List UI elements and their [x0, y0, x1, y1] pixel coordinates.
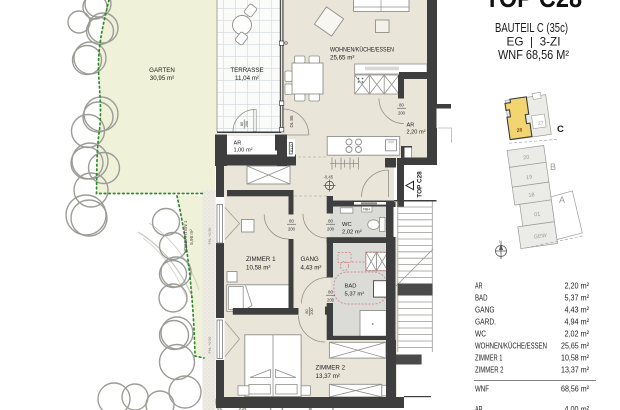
svg-text:TOP C28: TOP C28: [417, 171, 424, 198]
svg-text:AR: AR: [475, 281, 483, 291]
svg-text:ZIMMER 2: ZIMMER 2: [475, 365, 504, 375]
svg-text:ZIMMER 2: ZIMMER 2: [316, 365, 346, 372]
svg-text:200: 200: [398, 111, 406, 116]
svg-text:10,58 m²: 10,58 m²: [246, 265, 270, 272]
svg-text:25,65 m²: 25,65 m²: [330, 55, 354, 62]
svg-text:80: 80: [305, 309, 309, 313]
svg-text:13,37 m²: 13,37 m²: [561, 365, 589, 375]
svg-text:TERRASSE: TERRASSE: [230, 67, 263, 74]
svg-text:B: B: [550, 162, 556, 172]
svg-text:-0,45: -0,45: [324, 175, 334, 180]
svg-text:FHL +0,90: FHL +0,90: [208, 337, 212, 354]
svg-text:2,20 m²: 2,20 m²: [565, 281, 590, 291]
svg-text:80: 80: [240, 122, 244, 126]
svg-text:30,95 m²: 30,95 m²: [150, 75, 174, 82]
svg-text:2,02 m²: 2,02 m²: [565, 329, 590, 339]
svg-text:20: 20: [523, 155, 530, 162]
svg-text:68,56 m²: 68,56 m²: [561, 384, 589, 394]
svg-text:19: 19: [526, 174, 533, 181]
svg-text:80: 80: [289, 219, 294, 224]
svg-text:2,20 m²: 2,20 m²: [407, 130, 426, 136]
svg-text:80: 80: [328, 219, 333, 224]
svg-text:WC: WC: [475, 329, 486, 339]
svg-text:FHL +0,90: FHL +0,90: [208, 228, 212, 245]
svg-text:C: C: [557, 124, 564, 135]
svg-text:TOP C28: TOP C28: [485, 0, 582, 13]
svg-text:4,00 m²: 4,00 m²: [565, 404, 590, 410]
svg-text:4,94 m²: 4,94 m²: [565, 317, 590, 327]
svg-text:WNF 68,56 M²: WNF 68,56 M²: [498, 48, 569, 62]
svg-text:13,37 m²: 13,37 m²: [316, 373, 340, 380]
svg-text:GANG: GANG: [475, 305, 495, 315]
svg-text:2,02 m²: 2,02 m²: [342, 230, 362, 236]
svg-text:FBH: FBH: [363, 208, 370, 212]
svg-text:AR: AR: [475, 404, 483, 410]
svg-text:5,37 m²: 5,37 m²: [565, 293, 590, 303]
svg-text:GARD.: GARD.: [475, 317, 496, 327]
svg-text:AR: AR: [407, 123, 415, 129]
svg-text:27: 27: [538, 120, 545, 127]
svg-text:25,65 m²: 25,65 m²: [561, 341, 589, 351]
svg-text:GANG: GANG: [301, 256, 319, 263]
svg-text:BAD: BAD: [345, 284, 357, 290]
svg-text:BAD: BAD: [475, 293, 488, 303]
svg-text:1,00 m²: 1,00 m²: [234, 148, 253, 154]
svg-text:WC: WC: [342, 222, 352, 228]
svg-text:EG | 3-ZI: EG | 3-ZI: [507, 35, 561, 49]
svg-text:VORGARTEN 1: VORGARTEN 1: [183, 220, 188, 253]
svg-text:A: A: [559, 195, 565, 205]
svg-text:18: 18: [528, 192, 535, 199]
svg-text:AR: AR: [234, 141, 242, 147]
svg-text:WOHNEN/KÜCHE/ESSEN: WOHNEN/KÜCHE/ESSEN: [475, 341, 547, 351]
svg-text:200: 200: [327, 227, 335, 232]
svg-text:5,37 m²: 5,37 m²: [345, 292, 365, 298]
svg-text:WOHNEN/KÜCHE/ESSEN: WOHNEN/KÜCHE/ESSEN: [330, 47, 394, 54]
svg-text:GARTEN: GARTEN: [149, 67, 175, 74]
svg-text:N: N: [499, 239, 502, 244]
svg-text:DL 85: DL 85: [289, 115, 294, 128]
svg-text:10,58 m²: 10,58 m²: [561, 353, 589, 363]
svg-text:ZIMMER 1: ZIMMER 1: [475, 353, 503, 363]
svg-text:11,04 m²: 11,04 m²: [235, 75, 259, 82]
svg-text:ELO: ELO: [290, 144, 294, 152]
svg-text:80: 80: [328, 290, 333, 295]
svg-text:200: 200: [327, 298, 335, 303]
svg-text:01: 01: [534, 212, 541, 219]
svg-text:28: 28: [516, 127, 523, 134]
svg-text:4,43 m²: 4,43 m²: [301, 265, 322, 272]
svg-text:WNF: WNF: [475, 384, 489, 394]
svg-text:200: 200: [288, 227, 296, 232]
svg-text:200: 200: [310, 308, 314, 314]
svg-text:200: 200: [245, 121, 249, 127]
svg-text:BAUTEIL C (35c): BAUTEIL C (35c): [495, 21, 568, 35]
svg-text:5,98 m²: 5,98 m²: [189, 229, 194, 245]
svg-text:ZIMMER 1: ZIMMER 1: [246, 256, 276, 263]
svg-text:4,43 m²: 4,43 m²: [565, 305, 590, 315]
svg-text:80: 80: [399, 103, 404, 108]
